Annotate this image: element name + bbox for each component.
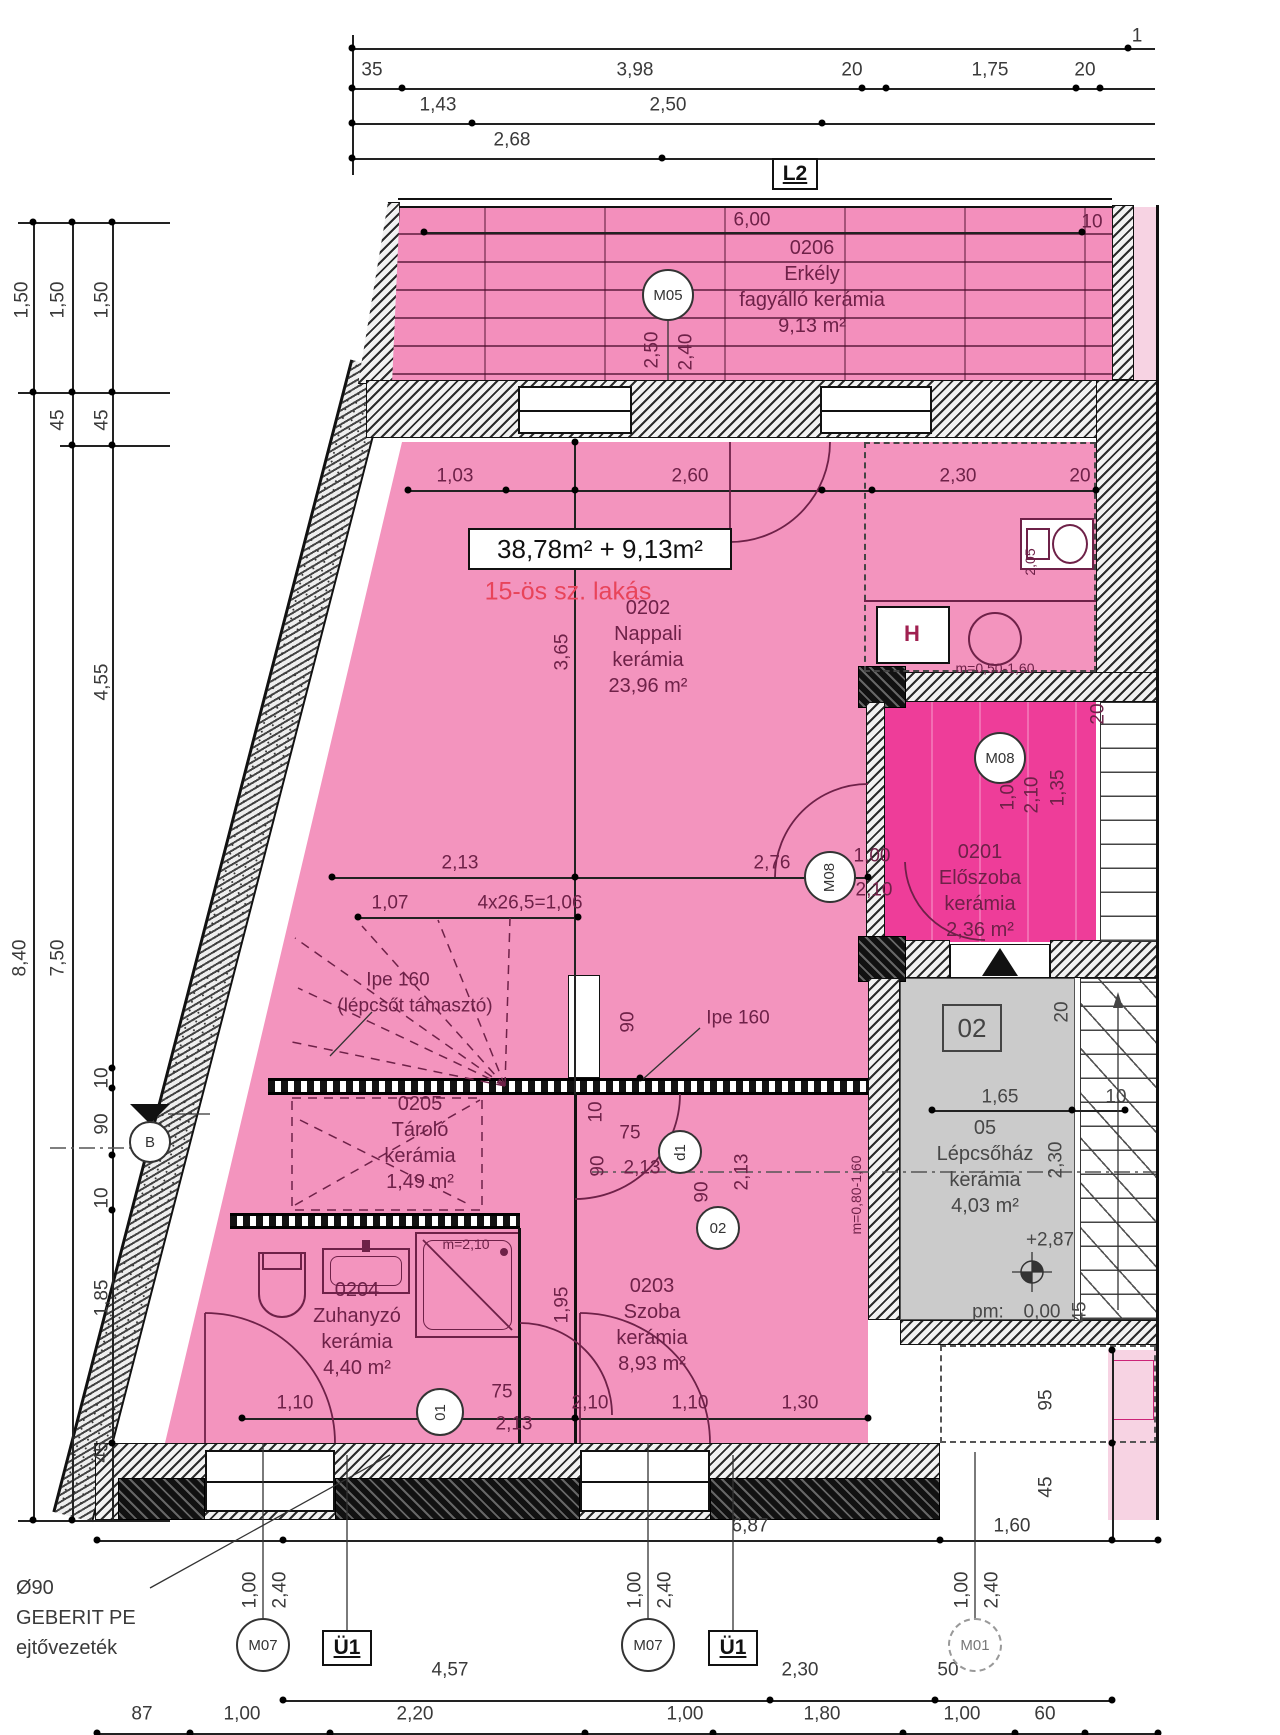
- dim-label: 20: [1089, 703, 1108, 724]
- stair-direction-arrow: [1113, 992, 1123, 1008]
- dim-node: [929, 1107, 936, 1114]
- dim-label: 1,00: [667, 1705, 704, 1724]
- floor-plan: 1353,98201,75201,432,502,686,00102,502,4…: [0, 0, 1280, 1735]
- dim-label: pm:: [972, 1303, 1004, 1322]
- dim-label: H: [904, 623, 920, 645]
- ref-box: Ü1: [708, 1630, 758, 1666]
- room-label-material: fagyálló kerámia: [739, 290, 885, 310]
- dim-node: [469, 120, 476, 127]
- dim-node: [349, 155, 356, 162]
- dim-label: 1,00: [241, 1572, 260, 1609]
- dim-node: [69, 219, 76, 226]
- dim-label: 2,50: [643, 332, 662, 369]
- dim-label: 3,65: [553, 634, 572, 671]
- dim-node: [1109, 1440, 1116, 1447]
- dim-node: [865, 874, 872, 881]
- marker-text: d1: [672, 1144, 689, 1161]
- dim-label: 6,87: [732, 1517, 769, 1536]
- dim-node: [1155, 1730, 1162, 1735]
- dim-label: 2,40: [271, 1572, 290, 1609]
- dim-label: GEBERIT PE: [16, 1608, 136, 1628]
- marker-text: M08: [822, 862, 839, 891]
- room-label-number: 0202: [626, 598, 671, 618]
- dim-node: [937, 1537, 944, 1544]
- dim-label: 35: [361, 61, 382, 80]
- dim-label: 2,05: [1023, 548, 1037, 575]
- dim-label: 10: [1081, 213, 1102, 232]
- dim-label: 1,10: [277, 1394, 314, 1413]
- dim-label: 1,30: [782, 1394, 819, 1413]
- room-label-name: Lépcsőház: [937, 1144, 1034, 1164]
- marker-text: M05: [653, 287, 682, 304]
- room-label-number: 05: [974, 1118, 996, 1138]
- dim-label: 2,40: [983, 1572, 1002, 1609]
- dim-node: [280, 1537, 287, 1544]
- dim-label: 60: [1034, 1705, 1055, 1724]
- dim-node: [767, 1697, 774, 1704]
- room-label-material: kerámia: [949, 1170, 1020, 1190]
- dim-node: [30, 1517, 37, 1524]
- dim-label: 90: [693, 1181, 712, 1202]
- dim-label: 2,76: [754, 854, 791, 873]
- dim-node: [503, 487, 510, 494]
- dim-label: 7,50: [49, 940, 68, 977]
- dim-node: [109, 1085, 116, 1092]
- dim-label: 2,13: [442, 854, 479, 873]
- dim-label: 20: [1074, 61, 1095, 80]
- dim-node: [710, 1730, 717, 1735]
- dim-label: 1,80: [804, 1705, 841, 1724]
- dim-label: 2,30: [782, 1661, 819, 1680]
- dim-label: 3,98: [617, 61, 654, 80]
- room-label-area: 8,93 m²: [618, 1354, 686, 1374]
- room-label-name: Előszoba: [939, 868, 1021, 888]
- dim-node: [1082, 1730, 1089, 1735]
- room-label-name: Szoba: [624, 1302, 681, 1322]
- dim-label: 1,03: [437, 467, 474, 486]
- dim-node: [932, 1697, 939, 1704]
- dim-node: [355, 914, 362, 921]
- dim-label: 90: [93, 1113, 112, 1134]
- dim-node: [869, 487, 876, 494]
- dim-node: [239, 1415, 246, 1422]
- dim-node: [1097, 85, 1104, 92]
- leader-lines: [150, 318, 1118, 1630]
- ref-box: L2: [772, 158, 818, 190]
- dim-node: [582, 1730, 589, 1735]
- dim-label: 45: [93, 409, 112, 430]
- dim-label: 1,00: [626, 1572, 645, 1609]
- dim-label: 1,35: [1049, 770, 1068, 807]
- dim-label: 6,00: [734, 211, 771, 230]
- dim-label: 2,50: [650, 96, 687, 115]
- dim-node: [109, 1440, 116, 1447]
- dim-label: 45: [1071, 1301, 1090, 1322]
- dim-label: 4x26,5=1,06: [477, 894, 582, 913]
- dim-label: 95: [1037, 1389, 1056, 1410]
- dim-label: 4,55: [93, 664, 112, 701]
- dim-label: 20: [841, 61, 862, 80]
- dim-label: 2,20: [397, 1705, 434, 1724]
- room-label-name: Erkély: [784, 264, 840, 284]
- room-label-number: 0206: [790, 238, 835, 258]
- dim-label: 2,40: [656, 1572, 675, 1609]
- dim-label: Ipe 160: [366, 971, 429, 990]
- marker-d1: d1: [658, 1130, 702, 1174]
- dim-node: [865, 1415, 872, 1422]
- room-label-area: 9,13 m²: [778, 316, 846, 336]
- dim-node: [1109, 1537, 1116, 1544]
- dim-label: 10: [1105, 1088, 1126, 1107]
- dim-node: [1073, 85, 1080, 92]
- ref-box: Ü1: [322, 1630, 372, 1666]
- dim-label: 1,60: [994, 1517, 1031, 1536]
- dim-node: [1069, 1107, 1076, 1114]
- dim-label: 1,50: [49, 282, 68, 319]
- dim-node: [572, 1415, 579, 1422]
- marker-01: 01: [416, 1388, 464, 1436]
- dim-node: [94, 1537, 101, 1544]
- dim-label: 1,00: [953, 1572, 972, 1609]
- dim-label: 1,50: [13, 282, 32, 319]
- dim-label: 1,07: [372, 894, 409, 913]
- dim-label: 2,30: [1047, 1142, 1066, 1179]
- dim-label: 20: [1069, 467, 1090, 486]
- marker-text: 02: [710, 1220, 727, 1237]
- dim-label: 2,13: [733, 1154, 752, 1191]
- dim-node: [69, 1517, 76, 1524]
- dim-node: [1122, 1107, 1129, 1114]
- dim-label: 1,00: [224, 1705, 261, 1724]
- marker-m08: M08: [974, 732, 1026, 784]
- entry-door-arrow: [982, 948, 1018, 976]
- dim-node: [349, 85, 356, 92]
- dim-node: [109, 1207, 116, 1214]
- dim-label: 1,65: [982, 1088, 1019, 1107]
- dim-node: [572, 439, 579, 446]
- dim-node: [109, 1152, 116, 1159]
- level-marker-icon: [1012, 1252, 1052, 1292]
- marker-text: B: [145, 1134, 155, 1151]
- marker-text: M01: [960, 1637, 989, 1654]
- dim-label: 1,00: [854, 847, 891, 866]
- dim-label: 75: [491, 1383, 512, 1402]
- room-label-name: Tároló: [392, 1120, 449, 1140]
- dim-label: 45: [1037, 1476, 1056, 1497]
- dim-node: [349, 120, 356, 127]
- room-label-name: Nappali: [614, 624, 682, 644]
- dim-node: [30, 219, 37, 226]
- marker-m08: M08: [804, 851, 856, 903]
- dim-label: 2,40: [677, 334, 696, 371]
- dim-node: [109, 219, 116, 226]
- dim-label: 1,00: [944, 1705, 981, 1724]
- marker-m07: M07: [621, 1618, 675, 1672]
- dim-node: [819, 120, 826, 127]
- dim-label: 10: [93, 1187, 112, 1208]
- marker-text: M07: [633, 1637, 662, 1654]
- room-label-area: 4,40 m²: [323, 1358, 391, 1378]
- dim-label: 1,43: [420, 96, 457, 115]
- dim-node: [637, 1075, 644, 1082]
- dim-node: [659, 155, 666, 162]
- dim-node: [1155, 1537, 1162, 1544]
- dim-label: 10: [587, 1101, 606, 1122]
- room-label-material: kerámia: [616, 1328, 687, 1348]
- dim-node: [109, 1065, 116, 1072]
- dim-node: [69, 389, 76, 396]
- dim-label: Ø90: [16, 1578, 54, 1598]
- marker-m05: M05: [642, 269, 694, 321]
- room-label-area: 4,03 m²: [951, 1196, 1019, 1216]
- dim-label: +2,87: [1026, 1231, 1074, 1250]
- dim-label: m=2,10: [442, 1237, 489, 1251]
- dim-node: [900, 1730, 907, 1735]
- dim-label: 20: [1053, 1001, 1072, 1022]
- room-label-area: 2,36 m²: [946, 920, 1014, 940]
- dim-node: [349, 45, 356, 52]
- dim-node: [1079, 229, 1086, 236]
- dim-node: [405, 487, 412, 494]
- dim-node: [819, 487, 826, 494]
- dim-node: [883, 85, 890, 92]
- dim-label: 4,57: [432, 1661, 469, 1680]
- dim-label: 8,40: [11, 940, 30, 977]
- dim-label: 2,13: [624, 1159, 661, 1178]
- plan-linework: [0, 0, 1280, 1735]
- room-label-number: 0203: [630, 1276, 675, 1296]
- dim-label: 45: [49, 409, 68, 430]
- marker-text: M08: [985, 750, 1014, 767]
- dim-label: 87: [131, 1705, 152, 1724]
- dim-label: 2,10: [1023, 777, 1042, 814]
- dim-node: [327, 1730, 334, 1735]
- dim-node: [329, 874, 336, 881]
- dim-node: [280, 1697, 287, 1704]
- dim-label: 1,95: [553, 1287, 572, 1324]
- dim-node: [1093, 487, 1100, 494]
- dim-label: 2,68: [494, 131, 531, 150]
- room-label-material: kerámia: [321, 1332, 392, 1352]
- dim-label: m=0,80-1,60: [849, 1156, 863, 1235]
- marker-text: M07: [248, 1637, 277, 1654]
- dim-node: [575, 914, 582, 921]
- dim-label: 1,10: [672, 1394, 709, 1413]
- room-label-name: Zuhanyzó: [313, 1306, 401, 1326]
- dim-node: [572, 487, 579, 494]
- room-label-number: 0201: [958, 842, 1003, 862]
- dim-node: [572, 874, 579, 881]
- dim-label: 0,00: [1024, 1303, 1061, 1322]
- room-label-number: 0204: [335, 1280, 380, 1300]
- marker-b: B: [129, 1121, 171, 1163]
- marker-m01: M01: [948, 1618, 1002, 1672]
- room-label-area: 23,96 m²: [609, 676, 688, 696]
- dim-label: 2,30: [940, 467, 977, 486]
- dim-label: 2,60: [672, 467, 709, 486]
- dim-node: [859, 85, 866, 92]
- room-label-material: kerámia: [384, 1146, 455, 1166]
- dim-label: 75: [619, 1124, 640, 1143]
- room-label-area: 1,49 m²: [386, 1172, 454, 1192]
- unit-area-box: 38,78m² + 9,13m²: [468, 528, 732, 570]
- dim-node: [399, 85, 406, 92]
- ref-box: 02: [942, 1004, 1002, 1052]
- marker-m07: M07: [236, 1618, 290, 1672]
- dim-node: [109, 389, 116, 396]
- dim-label: Ipe 160: [706, 1009, 769, 1028]
- dim-label: 1,50: [93, 282, 112, 319]
- room-label-material: kerámia: [612, 650, 683, 670]
- dim-label: 2,13: [496, 1415, 533, 1434]
- dim-node: [1109, 1347, 1116, 1354]
- marker-text: 01: [432, 1404, 449, 1421]
- room-label-material: kerámia: [944, 894, 1015, 914]
- dim-node: [1109, 1697, 1116, 1704]
- dim-node: [187, 1730, 194, 1735]
- dim-label: 90: [589, 1155, 608, 1176]
- dim-node: [421, 229, 428, 236]
- dim-node: [1125, 45, 1132, 52]
- dim-label: 2,10: [572, 1394, 609, 1413]
- dim-label: (lépcsőt támasztó): [337, 997, 492, 1016]
- dim-label: m=0,50-1,60: [956, 661, 1035, 675]
- dim-label: 1,75: [972, 61, 1009, 80]
- dim-label: ejtővezeték: [16, 1638, 117, 1658]
- room-label-number: 0205: [398, 1094, 443, 1114]
- dim-node: [1012, 1730, 1019, 1735]
- dim-label: 2,10: [856, 881, 893, 900]
- dim-node: [69, 442, 76, 449]
- marker-02: 02: [696, 1206, 740, 1250]
- dim-label: 1,85: [93, 1280, 112, 1317]
- dim-node: [109, 442, 116, 449]
- dim-label: 1: [1132, 27, 1143, 46]
- dim-node: [30, 389, 37, 396]
- dim-label: 90: [619, 1011, 638, 1032]
- dim-node: [94, 1730, 101, 1735]
